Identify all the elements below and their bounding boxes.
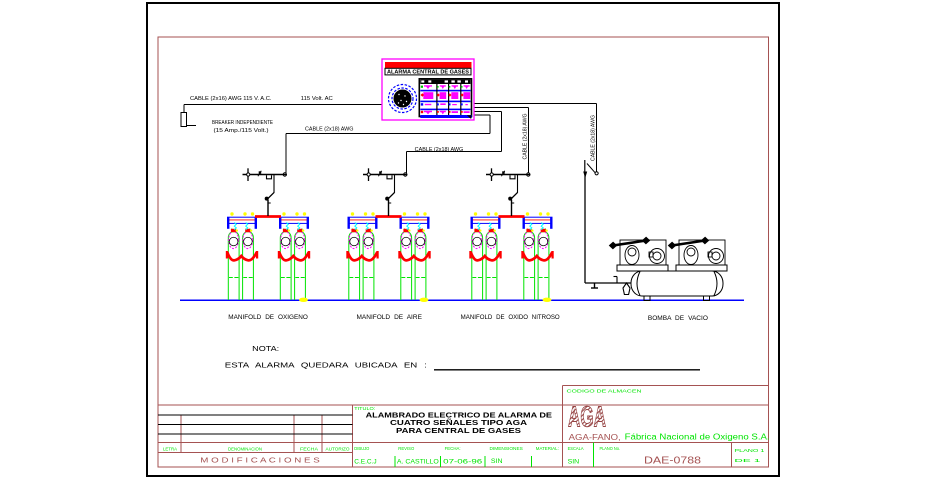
svg-text:NOTA:: NOTA: [252,346,279,353]
svg-text:CABLE (2x18) AWG: CABLE (2x18) AWG [590,115,596,161]
svg-text:CABLE (2x18) AWG: CABLE (2x18) AWG [305,127,354,133]
svg-text:DE 1: DE 1 [734,458,761,464]
svg-text:BREAKER INDEPENDIENTE: BREAKER INDEPENDIENTE [212,120,273,126]
svg-text:M O D I F I C A C I O N E S: M O D I F I C A C I O N E S [200,455,319,464]
svg-text:LETRA: LETRA [163,446,178,452]
svg-text:MANIFOLD DE OXIGENO: MANIFOLD DE OXIGENO [228,315,308,321]
svg-text:115 Volt. AC: 115 Volt. AC [301,96,333,102]
svg-text:PLANO 1: PLANO 1 [734,448,764,454]
svg-text:SIN: SIN [491,458,503,465]
svg-text:07-06-96: 07-06-96 [443,459,483,466]
svg-text:PLANO No.: PLANO No. [600,446,621,452]
svg-text:MANIFOLD DE AIRE: MANIFOLD DE AIRE [357,315,422,321]
svg-text:MANIFOLD DE OXIDO NITROSO: MANIFOLD DE OXIDO NITROSO [461,315,560,321]
svg-text:DENOMINACION: DENOMINACION [228,446,262,452]
svg-text:AUTORIZO: AUTORIZO [326,446,350,452]
svg-text:ESTA ALARMA QUEDARA UBICADA EN: ESTA ALARMA QUEDARA UBICADA EN : [225,363,427,370]
svg-text:ALARMA CENTRAL DE GASES: ALARMA CENTRAL DE GASES [387,70,469,76]
svg-text:MATERIAL:: MATERIAL: [536,446,559,452]
svg-text:ESCALA: ESCALA [568,446,585,452]
svg-text:DAE-0788: DAE-0788 [644,454,701,466]
svg-text:FECHA:: FECHA: [445,446,461,452]
svg-text:BOMBA DE VACIO: BOMBA DE VACIO [648,316,708,322]
svg-text:REVISO: REVISO [398,446,414,452]
svg-text:DIMENSIONES: DIMENSIONES [490,446,523,452]
svg-text:(15 Amp./115 Volt.): (15 Amp./115 Volt.) [214,128,269,134]
svg-text:CODIGO DE ALMACEN: CODIGO DE ALMACEN [567,389,643,395]
svg-text:CABLE (2x18) AWG: CABLE (2x18) AWG [523,114,529,160]
svg-text:PARA CENTRAL DE GASES: PARA CENTRAL DE GASES [396,426,521,435]
svg-text:SIN: SIN [568,459,580,466]
svg-text:A. CASTILLO: A. CASTILLO [397,459,439,466]
svg-text:CABLE (2x18) AWG: CABLE (2x18) AWG [415,147,464,153]
svg-text:FECHA: FECHA [300,446,319,452]
svg-text:Fábrica Nacional de Oxigeno S.: Fábrica Nacional de Oxigeno S.A. [625,432,770,442]
svg-text:C.E.C.J: C.E.C.J [354,459,376,466]
svg-text:DIBUJO: DIBUJO [354,446,369,452]
svg-text:AGA: AGA [568,402,606,434]
svg-text:CABLE (2x16) AWG 115 V. A.C.: CABLE (2x16) AWG 115 V. A.C. [190,96,272,102]
